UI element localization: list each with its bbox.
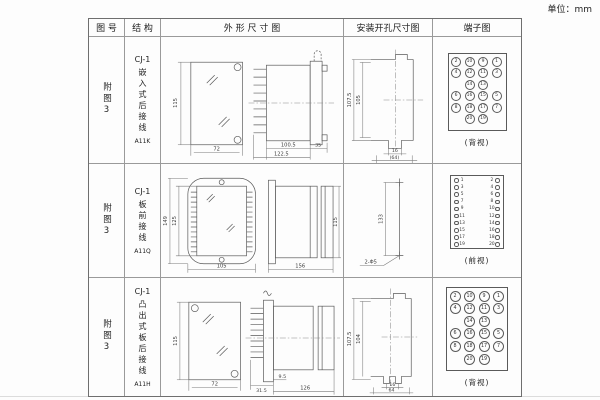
model-text: CJ-1	[135, 55, 151, 64]
terminal-14: 14	[488, 221, 495, 226]
front-dim-lines	[178, 62, 243, 155]
terminal-9: 9	[459, 206, 466, 211]
dim-side-1: 31.5	[256, 388, 267, 394]
terminal-10: 10	[464, 291, 475, 302]
terminal-6: 6	[450, 328, 461, 339]
dim-hole-spacing: 133	[379, 214, 385, 224]
install-drawing-holes: 133 2-Φ5	[344, 166, 432, 276]
dim-total-width: (64)	[390, 154, 400, 160]
install-drawing-embedded: 107.5 105 16 (64)	[344, 37, 432, 164]
terminal-4: 4	[450, 303, 461, 314]
terminal-17: 17	[479, 341, 490, 352]
dim-total-width: 64	[388, 387, 394, 393]
terminal-view-label: (前视)	[465, 255, 490, 266]
terminal-view-label: (背视)	[465, 137, 490, 148]
install-dim-lines	[352, 59, 417, 163]
install-dim-lines	[352, 298, 413, 394]
structure-code: A11Q	[134, 248, 150, 255]
terminal-pin-icon	[495, 178, 500, 183]
row3-outline-drawing: 115 72 31.5	[161, 278, 344, 396]
terminal-20: 20	[464, 354, 475, 365]
dim-side-3: 126	[300, 385, 310, 391]
terminal-16: 16	[488, 228, 495, 233]
row2-install-drawing: 133 2-Φ5	[344, 164, 433, 278]
terminal-19: 19	[459, 242, 466, 247]
row3-install-drawing: 107.5 104 16 64	[344, 278, 433, 396]
dim-front-width: 105	[217, 263, 227, 269]
terminal-7: 7	[492, 103, 502, 113]
terminal-5: 5	[492, 91, 502, 101]
terminal-17: 17	[478, 103, 488, 113]
structure-desc: 凸出式板后接线	[137, 300, 148, 377]
row1-install-drawing: 107.5 105 16 (64)	[344, 37, 433, 164]
figure-no-text: 附图3	[101, 203, 113, 239]
terminal-pin-icon	[495, 192, 500, 197]
header-terminal-diagram: 端子图	[433, 19, 521, 37]
terminal-6: 6	[488, 192, 495, 197]
row2-figure-no: 附图3	[89, 164, 125, 278]
side-view	[253, 50, 327, 144]
terminal-row: 34	[451, 184, 503, 191]
terminal-12: 12	[464, 303, 475, 314]
row1-structure: CJ-1 嵌入式后接线 A11K	[125, 37, 161, 164]
cutout-outline	[371, 54, 414, 148]
header-install-holes: 安装开孔尺寸图	[344, 19, 433, 37]
terminal-18: 18	[464, 341, 475, 352]
terminal-19: 19	[479, 354, 490, 365]
header-outline-dims: 外 形 尺 寸 图	[161, 19, 344, 37]
terminal-pin-icon	[495, 242, 500, 247]
header-figure-no: 图 号	[89, 19, 125, 37]
structure-code: A11H	[134, 381, 150, 388]
terminal-4: 4	[488, 185, 495, 190]
terminal-pin-icon	[495, 221, 500, 226]
dim-inner-height: 105	[356, 95, 362, 105]
structure-desc: 嵌入式后接线	[137, 68, 148, 134]
row3-figure-no: 附图3	[89, 278, 125, 396]
terminal-7: 7	[493, 341, 504, 352]
terminal-row: 1112	[451, 212, 503, 219]
install-drawing-protruding: 107.5 104 16 64	[344, 280, 432, 395]
terminal-13: 13	[478, 80, 488, 90]
terminal-15: 15	[478, 91, 488, 101]
row1-terminal-diagram: 2109141211314136161558181772019 (背视)	[433, 37, 521, 164]
dim-front-width: 72	[213, 146, 220, 152]
row2-outline-drawing: 149 125 105 156 115	[161, 164, 344, 278]
terminal-row: 1314	[451, 220, 503, 227]
structure-code: A11K	[135, 138, 151, 145]
front-view	[191, 62, 243, 145]
terminal-3: 3	[492, 68, 502, 78]
terminal-20: 20	[488, 242, 495, 247]
terminal-16: 16	[465, 91, 475, 101]
terminal-row: 78	[451, 198, 503, 205]
dim-notch-width: 16	[389, 381, 395, 387]
dim-side-3: 35	[315, 142, 321, 148]
dim-side-length: 156	[295, 263, 305, 269]
outline-drawing-embedded: 115 72 100.5 122.5 35	[161, 37, 343, 164]
terminal-16: 16	[464, 328, 475, 339]
dim-front-height: 115	[173, 336, 179, 346]
terminal-6: 6	[451, 91, 461, 101]
terminal-row: 1718	[451, 234, 503, 241]
row1-outline-drawing: 115 72 100.5 122.5 35	[161, 37, 344, 164]
terminal-13: 13	[479, 316, 490, 327]
terminal-11: 11	[459, 214, 466, 219]
row3-terminal-diagram: 2109141211314136161558181772019 (背视)	[433, 278, 521, 396]
row3-structure: CJ-1 凸出式板后接线 A11H	[125, 278, 161, 396]
model-text: CJ-1	[135, 287, 151, 296]
side-view	[268, 180, 333, 264]
terminal-1: 1	[492, 57, 502, 67]
side-view	[251, 291, 335, 382]
front-view	[188, 178, 256, 264]
terminal-grid-1: 2109141211314136161558181772019	[448, 53, 507, 131]
terminal-2: 2	[451, 57, 461, 67]
terminal-2: 2	[488, 178, 495, 183]
terminal-3: 3	[459, 185, 466, 190]
terminal-pin-icon	[495, 214, 500, 219]
structure-desc: 板前接线	[137, 200, 148, 244]
side-dim-lines	[268, 186, 341, 273]
terminal-5: 5	[493, 328, 504, 339]
terminal-pin-icon	[495, 185, 500, 190]
row2-terminal-diagram: 1234567891011121314151617181920 (前视)	[433, 164, 521, 278]
terminal-row: 12	[451, 177, 503, 184]
terminal-15: 15	[459, 228, 466, 233]
terminal-9: 9	[478, 57, 488, 67]
terminal-14: 14	[465, 80, 475, 90]
terminal-10: 10	[465, 57, 475, 67]
terminal-8: 8	[488, 199, 495, 204]
terminal-3: 3	[493, 303, 504, 314]
terminal-11: 11	[478, 68, 488, 78]
terminal-9: 9	[479, 291, 490, 302]
cutout-outline	[371, 293, 412, 383]
dim-inner-height: 104	[356, 334, 362, 344]
hole-marks	[395, 178, 403, 259]
terminal-pin-icon	[495, 235, 500, 240]
front-view	[189, 302, 241, 380]
terminal-5: 5	[459, 192, 466, 197]
terminal-pin-icon	[495, 207, 500, 212]
terminal-row: 910	[451, 205, 503, 212]
terminal-10: 10	[488, 206, 495, 211]
terminal-17: 17	[459, 235, 466, 240]
terminal-1: 1	[459, 178, 466, 183]
terminal-8: 8	[451, 103, 461, 113]
front-dim-lines	[177, 302, 241, 391]
terminal-grid-3: 2109141211314136161558181772019	[446, 287, 508, 371]
terminal-19: 19	[478, 114, 488, 124]
dimension-table: 图 号 结 构 外 形 尺 寸 图 安装开孔尺寸图 端子图 附图3 CJ-1 嵌…	[88, 18, 522, 397]
terminal-2: 2	[450, 291, 461, 302]
dim-outer-height: 149	[163, 216, 169, 226]
dim-side-2: 9.5	[279, 373, 287, 379]
terminal-1: 1	[493, 291, 504, 302]
dim-front-height: 115	[173, 98, 179, 108]
terminal-12: 12	[465, 68, 475, 78]
terminal-12: 12	[488, 214, 495, 219]
hole-spec-label: 2-Φ5	[364, 259, 376, 265]
terminal-row: 56	[451, 191, 503, 198]
unit-label: 单位：mm	[528, 2, 592, 15]
terminal-18: 18	[465, 103, 475, 113]
front-dim-lines	[168, 178, 256, 272]
terminal-11: 11	[479, 303, 490, 314]
terminal-pin-icon	[495, 228, 500, 233]
outline-drawing-protruding: 115 72 31.5	[161, 280, 343, 395]
terminal-7: 7	[459, 199, 466, 204]
dim-side-2: 122.5	[274, 151, 289, 157]
terminal-row: 1516	[451, 227, 503, 234]
terminal-cols-2: 1234567891011121314151617181920	[450, 175, 504, 249]
dim-inner-height: 125	[172, 216, 178, 226]
dim-side-height: 115	[333, 217, 339, 227]
dim-outer-height: 107.5	[347, 331, 353, 346]
manual-page: 单位：mm 图 号 结 构 外 形 尺 寸 图 安装开孔尺寸图 端子图 附图3 …	[0, 0, 600, 400]
terminal-view-label: (背视)	[465, 377, 490, 388]
dim-notch-width: 16	[392, 147, 398, 153]
row1-figure-no: 附图3	[89, 37, 125, 164]
row2-structure: CJ-1 板前接线 A11Q	[125, 164, 161, 278]
model-text: CJ-1	[135, 187, 151, 196]
terminal-13: 13	[459, 221, 466, 226]
terminal-row: 1920	[451, 241, 503, 248]
header-structure: 结 构	[125, 19, 161, 37]
terminal-pin-icon	[495, 200, 500, 205]
dim-side-1: 100.5	[281, 142, 296, 148]
terminal-4: 4	[451, 68, 461, 78]
terminal-20: 20	[465, 114, 475, 124]
terminal-8: 8	[450, 341, 461, 352]
terminal-18: 18	[488, 235, 495, 240]
outline-drawing-frontwired: 149 125 105 156 115	[161, 166, 343, 276]
dim-outer-height: 107.5	[347, 92, 353, 107]
terminal-14: 14	[464, 316, 475, 327]
dim-front-width: 72	[211, 381, 218, 387]
figure-no-text: 附图3	[101, 319, 113, 355]
figure-no-text: 附图3	[101, 82, 113, 118]
terminal-15: 15	[479, 328, 490, 339]
